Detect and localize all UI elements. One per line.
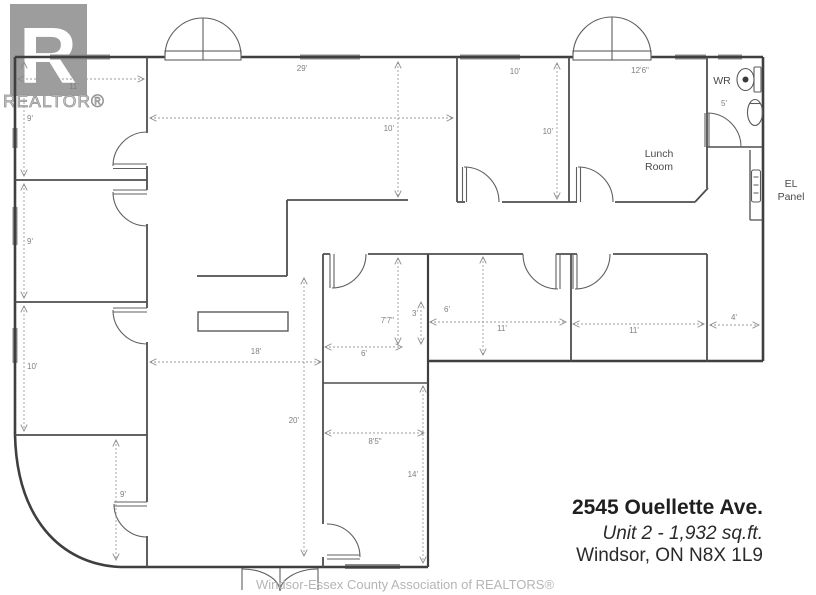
door-inner-office — [330, 254, 366, 288]
dim-mid-room-width: 10' — [510, 67, 521, 76]
door-room-6 — [573, 254, 610, 289]
el-panel-icon — [752, 170, 761, 202]
dim-hall-width: 4' — [731, 313, 737, 322]
address-line2: Unit 2 - 1,932 sq.ft. — [602, 523, 763, 544]
dim-reception-depth: 20' — [289, 416, 300, 425]
dim-office3-depth: 10' — [27, 362, 38, 371]
dim-inner-office-width: 6' — [361, 349, 367, 358]
realtor-logo-wordmark: REALTOR® — [3, 91, 105, 111]
door-room-5 — [523, 254, 560, 289]
double-door-top-left — [165, 18, 241, 60]
floor-plan: R REALTOR® — [0, 0, 816, 595]
dim-office1-width: 11' — [69, 82, 79, 91]
room-labels: WR Lunch Room EL Panel — [645, 75, 805, 203]
lunch-room-label-line2: Room — [645, 161, 673, 173]
dim-bottom-room-depth: 14' — [408, 470, 419, 479]
dim-inner-office-offset: 3' — [412, 309, 418, 318]
dim-office5-width: 11' — [497, 324, 507, 333]
reception-desk — [198, 312, 288, 331]
door-mid-room — [463, 167, 500, 202]
address-line1: 2545 Ouellette Ave. — [572, 496, 763, 519]
door-wr — [705, 113, 741, 147]
double-door-top-right — [573, 17, 651, 60]
door-office-3 — [113, 308, 147, 344]
address-block: 2545 Ouellette Ave. Unit 2 - 1,932 sq.ft… — [572, 496, 763, 566]
wr-label: WR — [713, 75, 731, 87]
dim-office5-offset: 6' — [444, 305, 450, 314]
lunch-room-label-line1: Lunch — [645, 148, 674, 160]
door-lunch-room — [577, 167, 614, 202]
el-panel-label-line2: Panel — [778, 191, 805, 203]
door-office-1 — [113, 132, 147, 169]
dim-open-area-depth: 10' — [384, 124, 395, 133]
door-office-4 — [114, 502, 147, 537]
address-line3: Windsor, ON N8X 1L9 — [576, 545, 763, 566]
dim-lunch-room-width: 12'6" — [631, 66, 649, 75]
sink-icon — [748, 100, 763, 126]
floor-plan-page: R REALTOR® — [0, 0, 816, 595]
dim-wr-width: 5' — [721, 99, 727, 108]
dim-mid-room-depth: 10' — [543, 127, 554, 136]
dim-office6-width: 11' — [629, 326, 639, 335]
door-office-2 — [113, 190, 147, 226]
dim-inner-office-depth: 7'7" — [381, 316, 394, 325]
dim-office1-depth: 9' — [27, 114, 33, 123]
dim-open-area-width: 29' — [297, 64, 308, 73]
wall-reception-partition — [197, 200, 408, 276]
dimension-labels: 11' 9' 9' 10' 9' 29' 10' 10' 10' 12'6" 5… — [27, 64, 737, 499]
dim-office4-depth: 9' — [120, 490, 126, 499]
wr-fixtures — [737, 67, 763, 126]
wall-corridor-top — [457, 188, 708, 202]
door-bottom-room — [327, 524, 360, 559]
dim-office2-depth: 9' — [27, 237, 33, 246]
el-panel-label-line1: EL — [785, 178, 798, 190]
dim-reception-width: 18' — [251, 347, 262, 356]
dim-bottom-room-width: 8'5" — [368, 437, 381, 446]
footer-attribution: Windsor-Essex County Association of REAL… — [256, 577, 555, 592]
toilet-icon — [737, 67, 761, 92]
